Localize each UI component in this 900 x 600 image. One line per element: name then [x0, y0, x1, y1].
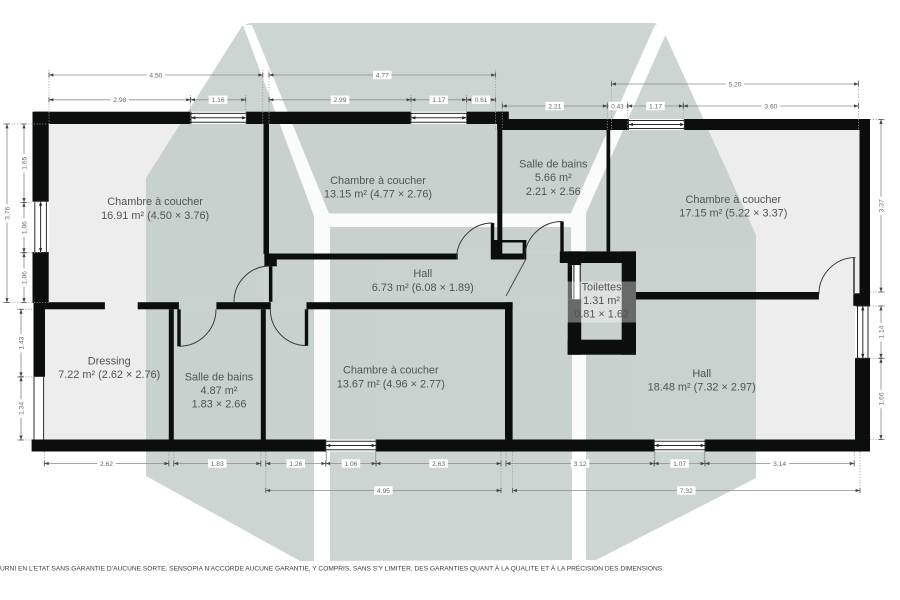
svg-text:7.32: 7.32	[680, 488, 693, 495]
svg-text:1.06: 1.06	[21, 221, 28, 234]
svg-text:URNI EN L’ETAT SANS GARANTIE D: URNI EN L’ETAT SANS GARANTIE D’AUCUNE SO…	[0, 564, 664, 573]
svg-text:1.26: 1.26	[289, 461, 302, 468]
svg-text:1.43: 1.43	[18, 336, 25, 349]
svg-text:3.12: 3.12	[574, 461, 587, 468]
svg-text:1.07: 1.07	[673, 461, 686, 468]
svg-text:2.99: 2.99	[333, 97, 346, 104]
svg-text:1.06: 1.06	[344, 461, 357, 468]
svg-text:Chambre à coucher13.15 m² (4.7: Chambre à coucher13.15 m² (4.77 × 2.76)	[324, 175, 432, 201]
svg-text:1.06: 1.06	[21, 271, 28, 284]
svg-text:Chambre à coucher16.91 m² (4.5: Chambre à coucher16.91 m² (4.50 × 3.76)	[101, 196, 209, 222]
svg-text:4.50: 4.50	[149, 72, 162, 79]
svg-text:Chambre à coucher13.67 m² (4.9: Chambre à coucher13.67 m² (4.96 × 2.77)	[337, 365, 445, 391]
svg-text:Chambre à coucher17.15 m² (5.2: Chambre à coucher17.15 m² (5.22 × 3.37)	[679, 194, 787, 220]
svg-text:3.76: 3.76	[4, 206, 11, 219]
svg-text:1.83: 1.83	[211, 461, 224, 468]
svg-text:2.62: 2.62	[100, 461, 113, 468]
svg-text:2.63: 2.63	[432, 461, 445, 468]
svg-text:4.77: 4.77	[376, 72, 389, 79]
svg-text:3.37: 3.37	[878, 199, 885, 212]
svg-text:1.17: 1.17	[432, 97, 445, 104]
svg-text:1.65: 1.65	[21, 156, 28, 169]
svg-text:2.98: 2.98	[113, 97, 126, 104]
svg-text:0.43: 0.43	[611, 103, 624, 110]
svg-text:1.16: 1.16	[212, 97, 225, 104]
svg-text:4.95: 4.95	[377, 488, 390, 495]
svg-text:1.17: 1.17	[649, 103, 662, 110]
svg-text:1.66: 1.66	[878, 392, 885, 405]
svg-text:0.61: 0.61	[475, 97, 488, 104]
svg-text:3.14: 3.14	[773, 461, 786, 468]
svg-text:3.60: 3.60	[764, 103, 777, 110]
svg-text:5.20: 5.20	[728, 81, 741, 88]
svg-text:2.21: 2.21	[548, 103, 561, 110]
svg-text:1.14: 1.14	[878, 325, 885, 338]
svg-text:1.34: 1.34	[18, 402, 25, 415]
